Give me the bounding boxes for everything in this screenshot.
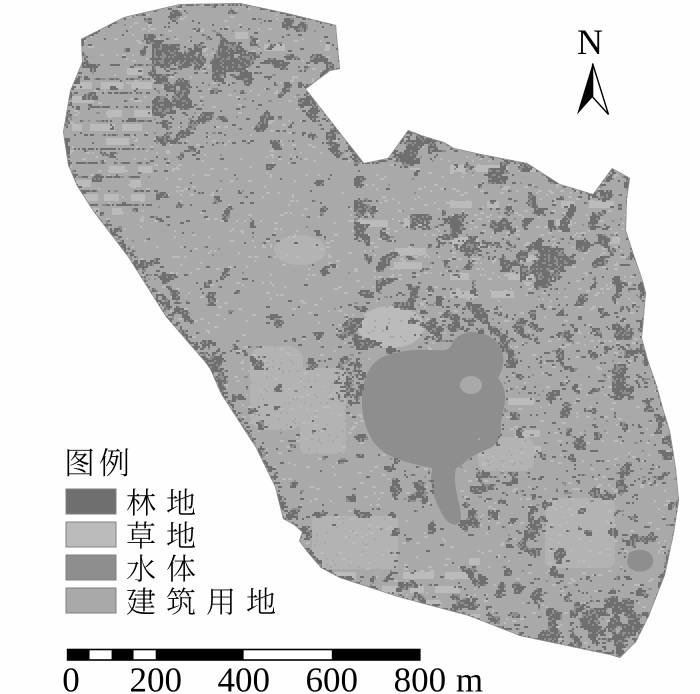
svg-text:m: m xyxy=(456,661,483,694)
svg-text:N: N xyxy=(577,22,603,62)
svg-text:600: 600 xyxy=(306,661,359,694)
svg-text:200: 200 xyxy=(129,661,182,694)
svg-text:0: 0 xyxy=(62,661,80,694)
svg-text:400: 400 xyxy=(217,661,270,694)
svg-text:800: 800 xyxy=(394,661,447,694)
